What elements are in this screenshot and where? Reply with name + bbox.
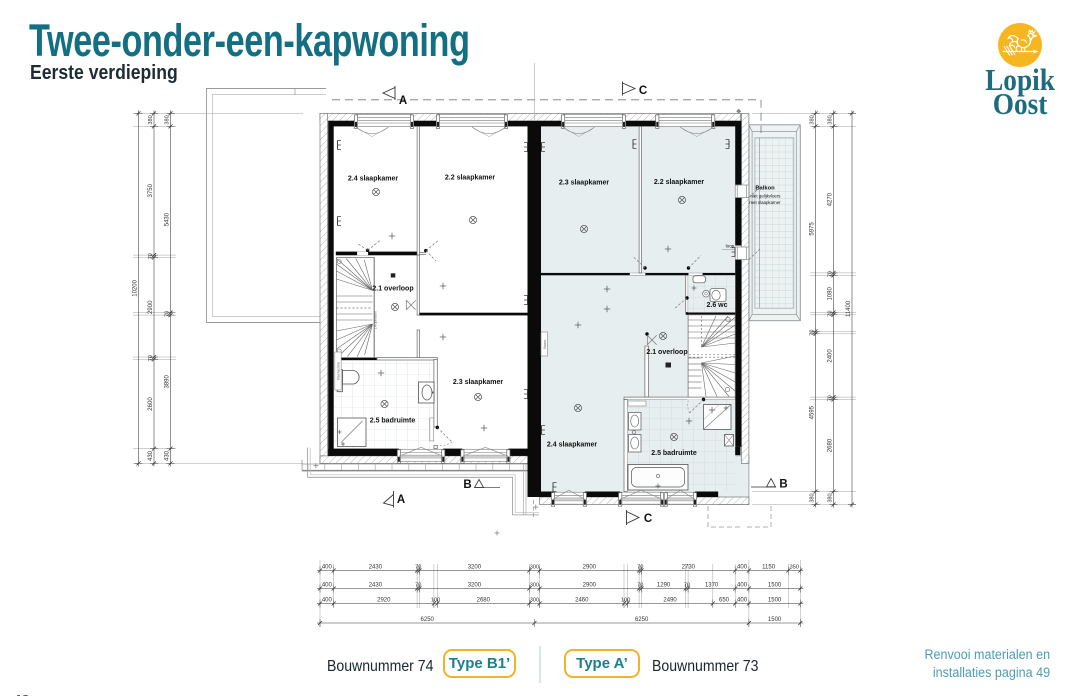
svg-text:100: 100 xyxy=(621,597,630,603)
svg-text:3890: 3890 xyxy=(164,375,170,389)
svg-text:2.6 wc: 2.6 wc xyxy=(706,302,727,309)
svg-text:380: 380 xyxy=(148,115,154,124)
svg-text:430: 430 xyxy=(148,450,154,461)
svg-text:B: B xyxy=(779,479,787,491)
svg-text:1500: 1500 xyxy=(768,617,782,623)
svg-text:2900: 2900 xyxy=(583,564,597,570)
svg-text:2.2 slaapkamer: 2.2 slaapkamer xyxy=(445,175,495,182)
svg-text:2.4 slaapkamer: 2.4 slaapkamer xyxy=(348,176,398,183)
svg-text:380: 380 xyxy=(809,115,815,124)
svg-text:1500: 1500 xyxy=(768,597,782,603)
svg-text:2900: 2900 xyxy=(583,582,597,588)
svg-text:70: 70 xyxy=(827,395,833,401)
svg-text:1150: 1150 xyxy=(762,564,776,570)
svg-text:3750: 3750 xyxy=(148,183,154,197)
svg-text:70: 70 xyxy=(827,310,833,316)
svg-text:70: 70 xyxy=(809,329,815,335)
svg-text:2600: 2600 xyxy=(148,397,154,411)
svg-text:1080: 1080 xyxy=(827,287,833,301)
svg-text:1290: 1290 xyxy=(657,582,671,588)
svg-text:70: 70 xyxy=(148,253,154,259)
svg-text:2.1 overloop: 2.1 overloop xyxy=(646,349,687,356)
svg-text:4270: 4270 xyxy=(827,192,833,206)
svg-text:70: 70 xyxy=(637,564,643,570)
svg-text:met slaapkamer: met slaapkamer xyxy=(749,200,781,205)
svg-text:6250: 6250 xyxy=(421,617,435,623)
svg-text:380: 380 xyxy=(827,115,833,124)
svg-text:10200: 10200 xyxy=(132,279,138,296)
svg-text:400: 400 xyxy=(737,582,748,588)
svg-text:400: 400 xyxy=(322,582,333,588)
svg-text:5975: 5975 xyxy=(809,222,815,236)
svg-text:2430: 2430 xyxy=(369,564,383,570)
svg-text:2.5 badruimte: 2.5 badruimte xyxy=(651,450,697,457)
svg-text:2400: 2400 xyxy=(827,349,833,363)
svg-text:70: 70 xyxy=(164,311,170,317)
svg-text:2.3 slaapkamer: 2.3 slaapkamer xyxy=(453,379,503,386)
svg-text:300: 300 xyxy=(530,582,539,588)
svg-text:A: A xyxy=(399,95,407,107)
svg-text:2730: 2730 xyxy=(682,564,696,570)
svg-text:2920: 2920 xyxy=(377,597,391,603)
svg-text:400: 400 xyxy=(737,597,748,603)
svg-text:B: B xyxy=(463,479,471,491)
svg-text:400: 400 xyxy=(737,564,748,570)
svg-text:5430: 5430 xyxy=(164,212,170,226)
svg-text:2490: 2490 xyxy=(663,597,677,603)
svg-text:70: 70 xyxy=(637,582,643,588)
svg-text:3200: 3200 xyxy=(468,564,482,570)
svg-text:2900: 2900 xyxy=(148,300,154,314)
svg-text:2680: 2680 xyxy=(827,438,833,452)
svg-text:Wasm.: Wasm. xyxy=(543,339,547,349)
svg-text:niet gelijkvloers: niet gelijkvloers xyxy=(750,194,781,199)
svg-text:C: C xyxy=(644,513,652,525)
svg-text:380: 380 xyxy=(827,493,833,502)
svg-text:C: C xyxy=(639,85,647,97)
svg-text:Wasmachine: Wasmachine xyxy=(337,362,341,381)
svg-text:400: 400 xyxy=(322,564,333,570)
svg-text:400: 400 xyxy=(322,597,333,603)
svg-text:70: 70 xyxy=(684,582,690,588)
svg-text:2.3 slaapkamer: 2.3 slaapkamer xyxy=(559,180,609,187)
svg-text:2.4 slaapkamer: 2.4 slaapkamer xyxy=(547,442,597,449)
svg-text:2.2 slaapkamer: 2.2 slaapkamer xyxy=(654,179,704,186)
svg-text:100: 100 xyxy=(431,597,440,603)
svg-text:430: 430 xyxy=(164,450,170,461)
svg-text:2460: 2460 xyxy=(575,597,589,603)
svg-text:A: A xyxy=(397,494,405,506)
svg-text:70: 70 xyxy=(415,582,421,588)
svg-text:650: 650 xyxy=(719,597,730,603)
svg-text:380: 380 xyxy=(164,115,170,124)
svg-text:350: 350 xyxy=(790,564,799,570)
svg-text:2.5 badruimte: 2.5 badruimte xyxy=(370,418,416,425)
svg-text:70: 70 xyxy=(827,271,833,277)
svg-text:6250: 6250 xyxy=(635,617,649,623)
svg-text:70: 70 xyxy=(415,564,421,570)
svg-text:3200: 3200 xyxy=(468,582,482,588)
svg-text:300: 300 xyxy=(530,564,539,570)
svg-text:2.1 overloop: 2.1 overloop xyxy=(372,286,413,293)
svg-text:380: 380 xyxy=(809,493,815,502)
svg-text:2680: 2680 xyxy=(477,597,491,603)
svg-text:1370: 1370 xyxy=(705,582,719,588)
svg-text:70: 70 xyxy=(148,355,154,361)
svg-text:300: 300 xyxy=(530,597,539,603)
svg-text:4595: 4595 xyxy=(809,405,815,419)
svg-text:11400: 11400 xyxy=(846,300,852,317)
svg-text:1500: 1500 xyxy=(768,582,782,588)
svg-text:2430: 2430 xyxy=(369,582,383,588)
svg-text:14 optreden: 14 optreden xyxy=(374,311,378,329)
